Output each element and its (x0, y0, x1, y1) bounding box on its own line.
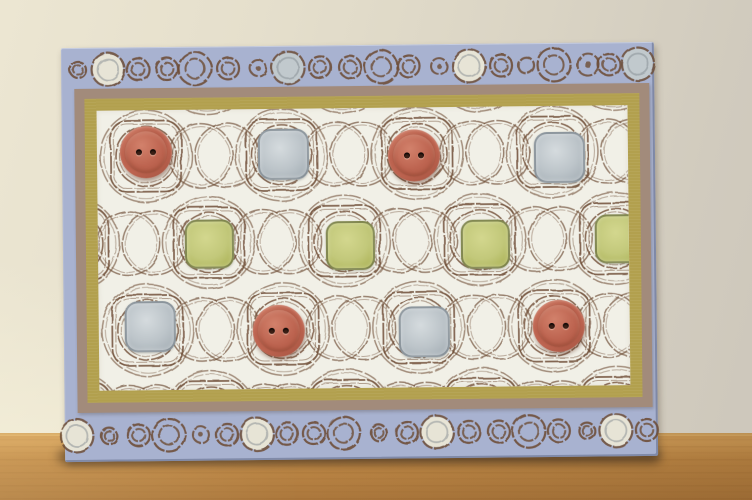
button-hole (549, 323, 555, 329)
inner-gold-mat (84, 93, 642, 403)
green-square-embellishment (325, 220, 375, 270)
button-hole (404, 152, 410, 158)
bottom-stamped-circle-border (65, 408, 658, 458)
terracotta-button (388, 129, 441, 182)
stamped-pattern-paper (97, 105, 631, 391)
button-hole (269, 328, 275, 334)
button-face (538, 305, 580, 347)
green-square-embellishment (594, 214, 630, 264)
green-square-embellishment (460, 219, 510, 269)
silver-square-embellishment (124, 300, 176, 352)
greeting-card (61, 42, 658, 462)
button-hole (150, 149, 156, 155)
green-square-embellishment (184, 219, 234, 269)
button-hole (283, 328, 289, 334)
button-hole (136, 149, 142, 155)
terracotta-button (253, 305, 306, 358)
silver-square-embellishment (398, 306, 450, 358)
photo-scene (0, 0, 752, 500)
button-hole (563, 323, 569, 329)
silver-square-embellishment (533, 131, 585, 183)
terracotta-button (120, 126, 173, 179)
button-hole (418, 152, 424, 158)
terracotta-button (533, 300, 586, 353)
button-face (125, 131, 167, 173)
outer-tan-mat (74, 83, 652, 413)
silver-square-embellishment (257, 128, 309, 180)
button-face (393, 134, 435, 176)
button-face (258, 310, 300, 352)
